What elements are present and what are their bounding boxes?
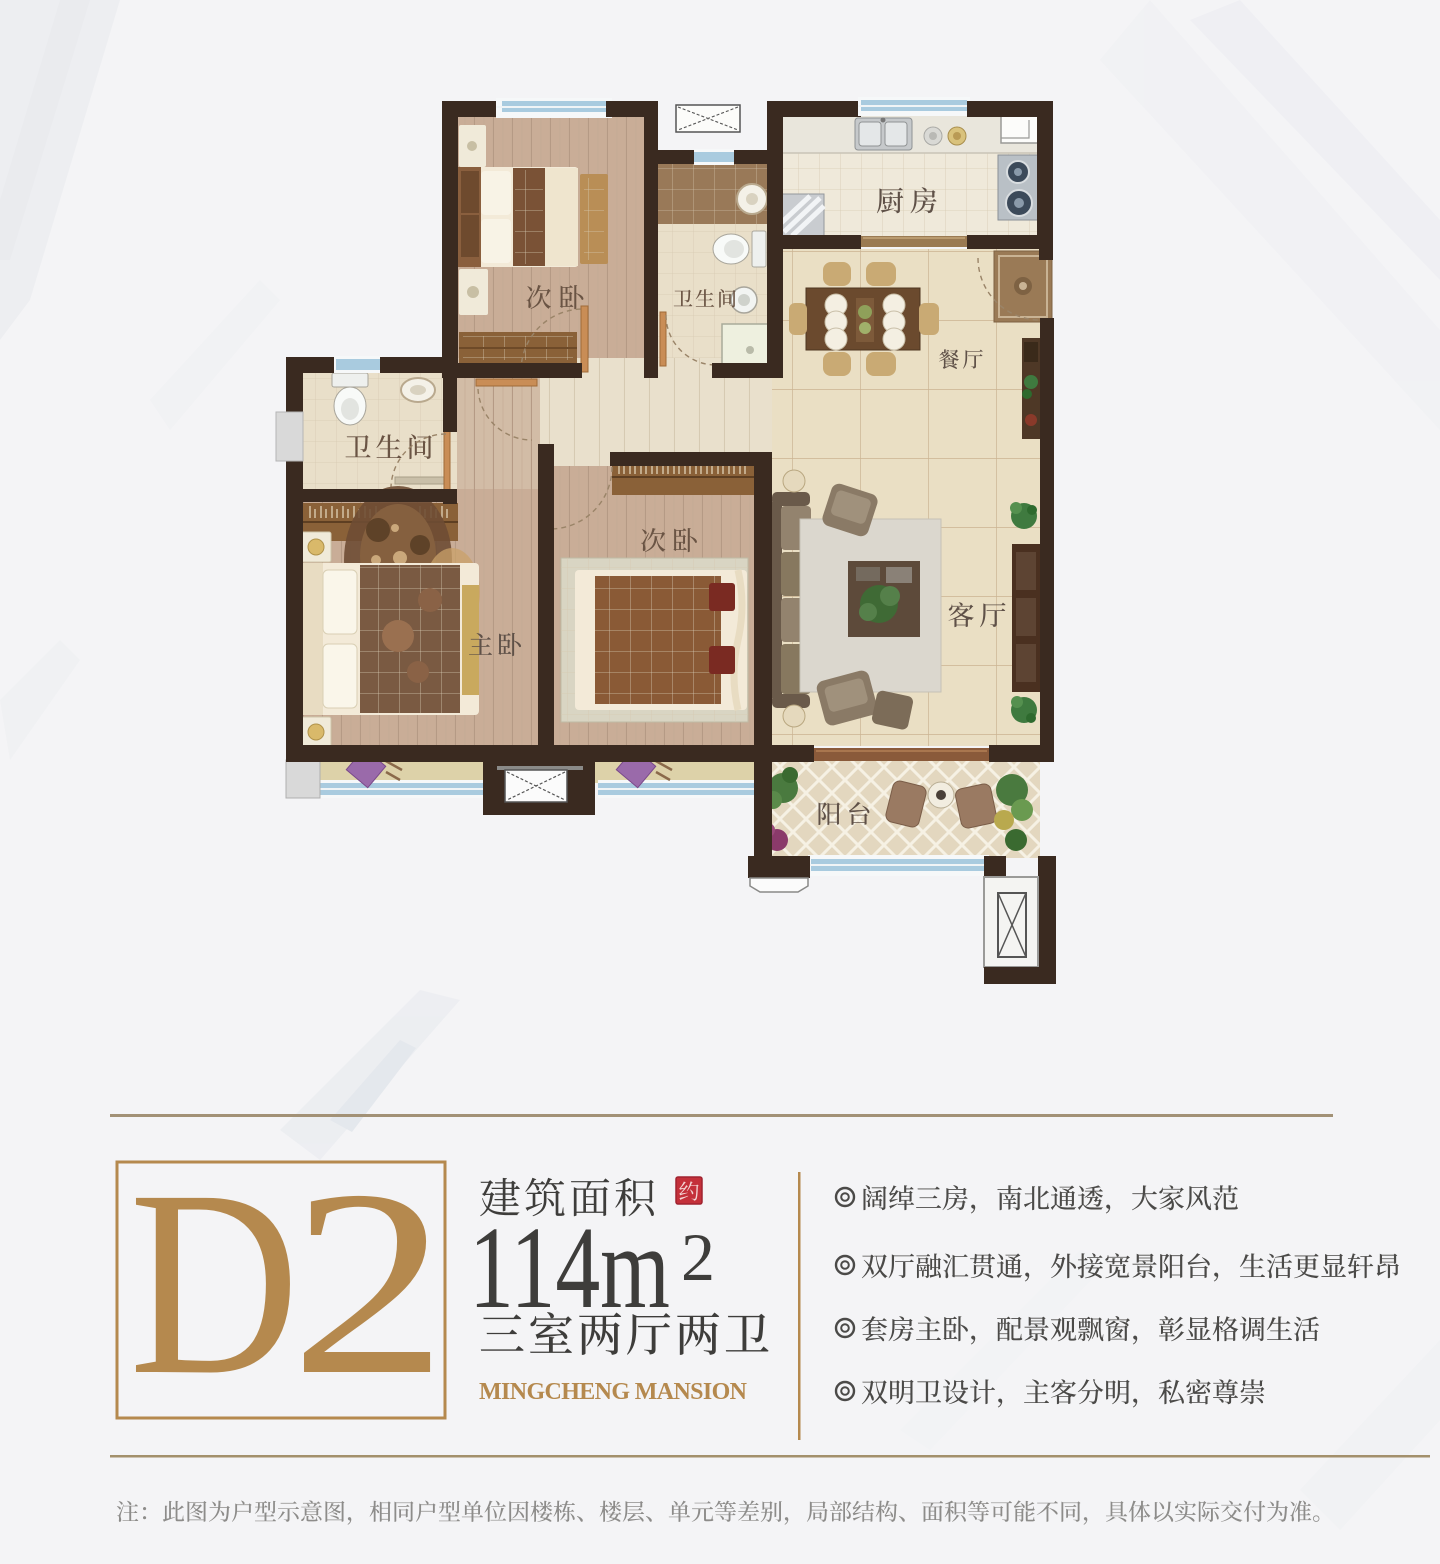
svg-text:2: 2 [290,1135,447,1430]
svg-text:2: 2 [681,1219,715,1295]
svg-text:MINGCHENG MANSION: MINGCHENG MANSION [479,1379,748,1405]
svg-text:D: D [129,1136,299,1430]
svg-text:114m: 114m [469,1202,670,1333]
